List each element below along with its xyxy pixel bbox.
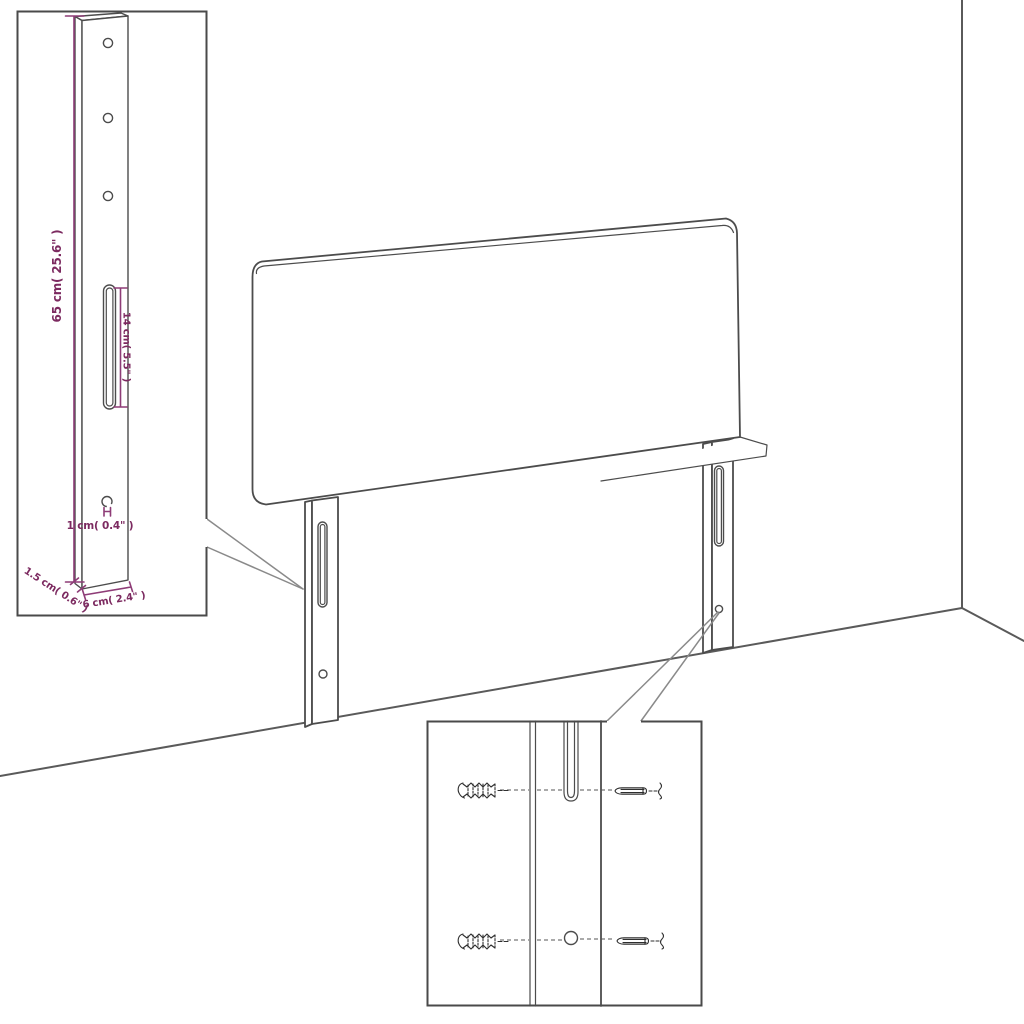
leg-slot — [318, 522, 327, 607]
leg-screw-hole — [715, 605, 722, 612]
dim-hole-label: 1 cm( 0.4" ) — [67, 520, 134, 532]
screw-body — [617, 938, 649, 944]
leg-slot — [715, 466, 724, 546]
dim-height-label: 65 cm( 25.6" ) — [50, 230, 64, 323]
bracket-hole — [103, 38, 112, 47]
bracket-hole — [103, 113, 112, 122]
bracket-hole — [103, 191, 112, 200]
bracket-slot — [104, 285, 116, 409]
bracket-small-hole — [102, 497, 112, 507]
screw-body — [615, 788, 647, 794]
diagram-canvas: 65 cm( 25.6" ) 14 cm( 5.5" ) 1 cm( 0.4" … — [0, 0, 1024, 1024]
callout-line — [641, 613, 719, 721]
leg-screw-hole — [319, 670, 327, 678]
callout-left — [207, 519, 303, 589]
headboard-leg-left — [305, 497, 338, 727]
leg-side-face — [305, 501, 312, 728]
assembly-diagram: 65 cm( 25.6" ) 14 cm( 5.5" ) 1 cm( 0.4" … — [0, 0, 1024, 1024]
floor-line-right — [962, 608, 1024, 641]
leg-screw-hole — [565, 932, 578, 945]
mounting-detail-inset — [427, 721, 702, 1006]
bracket-side-face — [75, 17, 82, 590]
bracket-detail-inset: 65 cm( 25.6" ) 14 cm( 5.5" ) 1 cm( 0.4" … — [17, 11, 207, 616]
headboard-leg-right — [703, 439, 733, 653]
dim-slot-label: 14 cm( 5.5" ) — [121, 312, 132, 382]
